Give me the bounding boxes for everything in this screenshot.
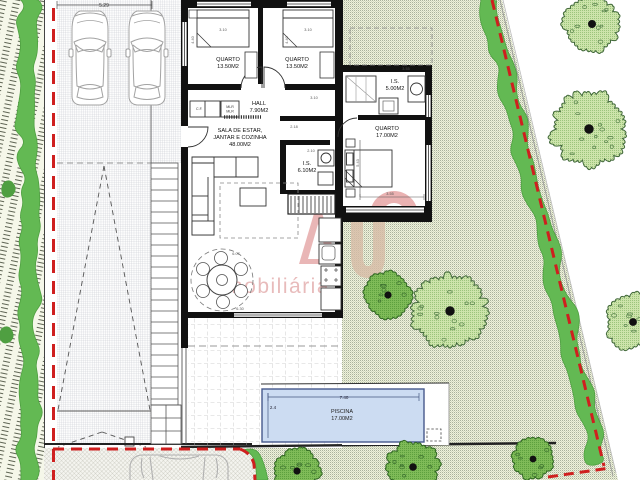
svg-text:7.40: 7.40 bbox=[340, 395, 349, 400]
svg-text:7.90M2: 7.90M2 bbox=[250, 108, 269, 114]
svg-text:6.07: 6.07 bbox=[232, 252, 239, 256]
svg-text:QUARTO: QUARTO bbox=[285, 57, 309, 63]
svg-text:17.00M2: 17.00M2 bbox=[331, 416, 352, 422]
svg-text:13.50M2: 13.50M2 bbox=[217, 64, 239, 70]
svg-text:SALA DE ESTAR,: SALA DE ESTAR, bbox=[218, 128, 263, 134]
svg-text:3.55: 3.55 bbox=[402, 67, 409, 71]
svg-text:2.4: 2.4 bbox=[270, 405, 277, 410]
svg-text:4.40: 4.40 bbox=[191, 36, 195, 43]
svg-text:3.10: 3.10 bbox=[219, 28, 226, 32]
svg-text:4.40: 4.40 bbox=[285, 36, 289, 43]
svg-text:3.10: 3.10 bbox=[304, 28, 311, 32]
svg-text:QUARTO: QUARTO bbox=[216, 57, 240, 63]
svg-text:17.00M2: 17.00M2 bbox=[376, 133, 398, 139]
svg-text:5.29: 5.29 bbox=[99, 3, 109, 9]
svg-text:HALL: HALL bbox=[252, 101, 266, 107]
svg-text:5.43: 5.43 bbox=[356, 159, 360, 166]
svg-text:C.F.: C.F. bbox=[196, 107, 203, 111]
svg-text:5.00M2: 5.00M2 bbox=[386, 86, 405, 92]
svg-text:PISCINA: PISCINA bbox=[331, 409, 353, 415]
svg-text:JANTAR E COZINHA: JANTAR E COZINHA bbox=[213, 135, 267, 141]
svg-text:2.18: 2.18 bbox=[290, 125, 297, 129]
svg-text:2.10: 2.10 bbox=[307, 149, 314, 153]
svg-text:13.50M2: 13.50M2 bbox=[286, 64, 308, 70]
svg-text:MLR: MLR bbox=[226, 110, 234, 114]
svg-text:I.S.: I.S. bbox=[391, 79, 400, 85]
svg-text:3.55: 3.55 bbox=[386, 192, 393, 196]
svg-text:QUARTO: QUARTO bbox=[375, 126, 399, 132]
svg-text:I.S.: I.S. bbox=[303, 161, 312, 167]
svg-text:48.00M2: 48.00M2 bbox=[229, 142, 251, 148]
svg-text:6.10M2: 6.10M2 bbox=[298, 168, 317, 174]
svg-text:6.30: 6.30 bbox=[236, 307, 243, 311]
svg-text:MLR: MLR bbox=[226, 105, 234, 109]
svg-text:3.10: 3.10 bbox=[310, 96, 317, 100]
